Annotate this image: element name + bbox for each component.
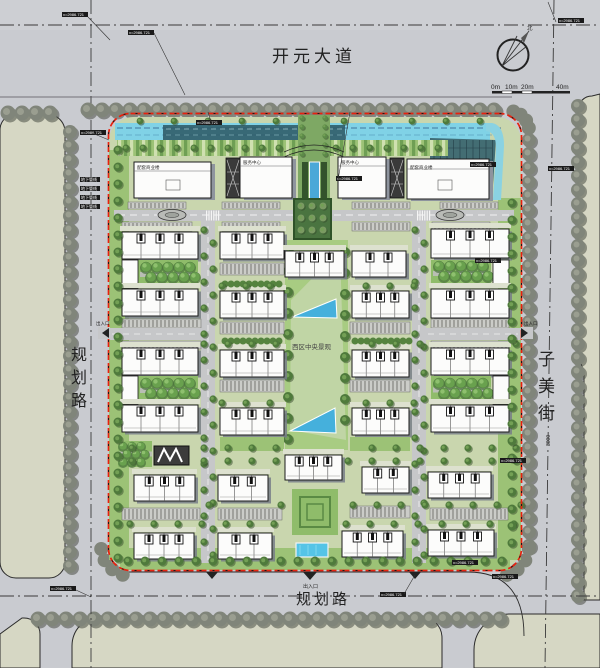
svg-text:x=2986.721: x=2986.721 (471, 162, 493, 167)
svg-text:x=2986.721: x=2986.721 (337, 176, 359, 181)
svg-text:划: 划 (71, 369, 87, 387)
svg-text:服务中心: 服务中心 (243, 159, 261, 166)
svg-text:街: 街 (538, 404, 555, 423)
svg-text:地下管线: 地下管线 (81, 194, 97, 200)
svg-text:x=2986.721: x=2986.721 (559, 18, 581, 23)
svg-text:地下管线: 地下管线 (81, 203, 97, 209)
svg-text:x=2986.721: x=2986.721 (63, 12, 85, 17)
svg-text:地下管线: 地下管线 (81, 185, 97, 191)
svg-text:子: 子 (538, 350, 555, 369)
svg-text:出入口: 出入口 (303, 583, 318, 590)
svg-text:配套商业楼: 配套商业楼 (137, 164, 160, 171)
svg-text:10m: 10m (505, 84, 518, 91)
svg-text:规划路: 规划路 (296, 591, 350, 608)
svg-text:开元大道: 开元大道 (272, 47, 356, 66)
svg-text:x=2986.721: x=2986.721 (501, 458, 523, 463)
svg-text:规: 规 (71, 346, 87, 364)
svg-text:20m: 20m (521, 84, 534, 91)
svg-text:x=2986.721: x=2986.721 (476, 258, 498, 263)
svg-text:服务中心: 服务中心 (341, 159, 359, 166)
svg-text:x=2986.721: x=2986.721 (129, 30, 151, 35)
svg-text:x=2986.721: x=2986.721 (51, 586, 73, 591)
svg-text:路: 路 (71, 392, 87, 410)
svg-text:x=2986.721: x=2986.721 (81, 130, 103, 135)
svg-text:北: 北 (527, 24, 533, 32)
svg-text:西区中央景观: 西区中央景观 (292, 342, 332, 351)
svg-text:40m: 40m (556, 84, 569, 91)
svg-text:地下管线: 地下管线 (81, 176, 97, 182)
svg-text:出入口: 出入口 (96, 320, 110, 327)
svg-text:0m: 0m (491, 84, 500, 91)
svg-text:美: 美 (538, 377, 555, 396)
svg-text:配套商业楼: 配套商业楼 (410, 164, 433, 171)
svg-text:x=2986.721: x=2986.721 (493, 574, 515, 579)
svg-text:x=2986.721: x=2986.721 (453, 560, 475, 565)
svg-text:x=2986.721: x=2986.721 (381, 592, 403, 597)
svg-text:x=2986.721: x=2986.721 (549, 166, 571, 171)
svg-text:出入口: 出入口 (524, 320, 538, 327)
svg-text:x=2986.721: x=2986.721 (197, 120, 219, 125)
svg-text:3000: 3000 (546, 435, 552, 446)
